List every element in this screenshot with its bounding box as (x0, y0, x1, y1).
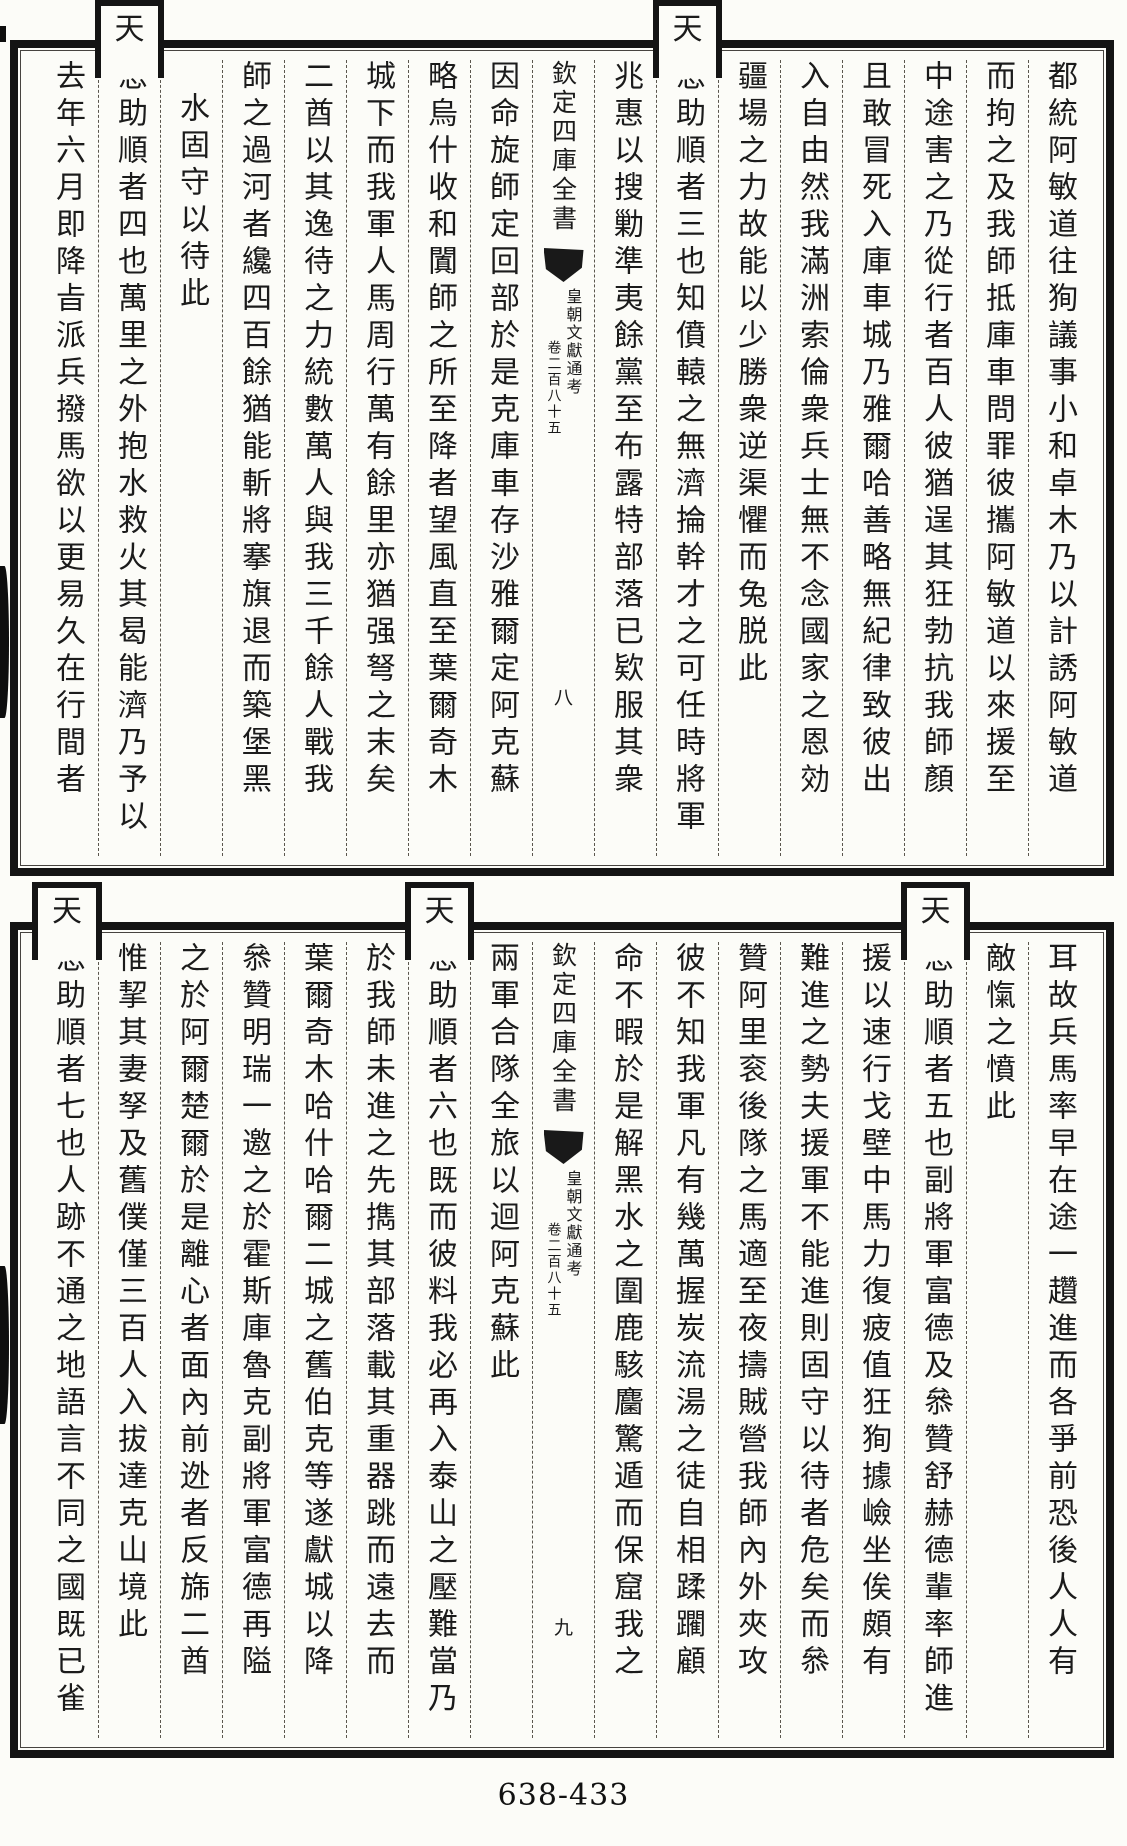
banxin-small-text: 皇朝文獻通考 卷二百八十五 (545, 288, 583, 436)
raised-tian-notch: 天 (95, 0, 164, 78)
lower-page-text-area: 耳故兵馬率早在途一趲進而各爭前恐後人人有 敵愾之憤此 天 恩助順者五也副將軍富德… (20, 932, 1104, 1748)
column-text: 恩助順者五也副將軍富德及叅贊舒赫德輩率師進 (918, 942, 953, 1719)
text-column: 兩軍合隊全旅以迴阿克蘇此 (470, 942, 532, 1738)
text-column: 疆場之力故能以少勝衆逆渠懼而兔脱此 (718, 60, 780, 856)
text-column: 惟挈其妻孥及舊僕僅三百人入拔達克山境此 (98, 942, 160, 1738)
text-column-raised-honorific: 天 恩助順者四也萬里之外抱水救火其曷能濟乃予以 (98, 60, 160, 856)
raised-tian-notch: 天 (32, 882, 102, 960)
text-column: 中途害之乃從行者百人彼猶逞其狂勃抗我師顏 (904, 60, 966, 856)
raised-tian-notch: 天 (653, 0, 722, 78)
banxin-page-number: 八 (554, 689, 573, 708)
upper-page-block: 都統阿敏道往狥議事小和卓木乃以計誘阿敏道 而拘之及我師抵庫車問罪彼攜阿敏道以來援… (10, 40, 1114, 876)
text-column-raised-honorific: 天 恩助順者七也人跡不通之地語言不同之國既已雀 (36, 942, 98, 1738)
text-column: 敵愾之憤此 (966, 942, 1028, 1738)
text-column: 贊阿里衮後隊之馬適至夜擣賊營我師內外夾攻 (718, 942, 780, 1738)
column-text: 恩助順者七也人跡不通之地語言不同之國既已雀 (50, 942, 85, 1719)
text-column: 因命旋師定回部於是克庫車存沙雅爾定阿克蘇 (470, 60, 532, 856)
fishtail-mark-icon (544, 248, 584, 282)
scan-artifact (0, 566, 9, 718)
banxin-chapter-label: 卷二百八十五 (545, 1222, 563, 1318)
text-column: 二酋以其逸待之力統數萬人與我三千餘人戰我 (284, 60, 346, 856)
banxin-center-column: 欽定四庫全書 皇朝文獻通考 卷二百八十五 九 (532, 942, 594, 1738)
raised-tian-notch: 天 (901, 882, 970, 960)
banxin-page-number: 九 (554, 1619, 573, 1638)
banxin-book-title: 皇朝文獻通考 (563, 288, 583, 436)
text-column: 難進之勢夫援軍不能進則固守以待者危矣而叅 (780, 942, 842, 1738)
scan-artifact (0, 26, 6, 42)
text-column: 城下而我軍人馬周行萬有餘里亦猶强弩之末矣 (346, 60, 408, 856)
column-text: 恩助順者三也知僨轅之無濟掄幹才之可任時將軍 (670, 60, 705, 837)
text-column: 水固守以待此 (160, 60, 222, 856)
banxin-series-title: 欽定四庫全書 (534, 60, 592, 234)
text-column: 略烏什收和闐師之所至降者望風直至葉爾奇木 (408, 60, 470, 856)
text-column-raised-honorific: 天 恩助順者五也副將軍富德及叅贊舒赫德輩率師進 (904, 942, 966, 1738)
text-column: 葉爾奇木哈什哈爾二城之舊伯克等遂獻城以降 (284, 942, 346, 1738)
scanned-page: 都統阿敏道往狥議事小和卓木乃以計誘阿敏道 而拘之及我師抵庫車問罪彼攜阿敏道以來援… (0, 0, 1127, 1846)
fishtail-mark-icon (544, 1130, 584, 1164)
raised-tian-notch: 天 (405, 882, 474, 960)
text-column: 兆惠以搜勦準夷餘黨至布露特部落已欵服其衆 (594, 60, 656, 856)
text-column: 之於阿爾楚爾於是離心者面內前迯者反旆二酋 (160, 942, 222, 1738)
text-column: 命不暇於是解黑水之圍鹿駭麕驚遁而保窟我之 (594, 942, 656, 1738)
text-column-raised-honorific: 天 恩助順者六也既而彼料我必再入泰山之壓難當乃 (408, 942, 470, 1738)
text-column: 援以速行戈壁中馬力復疲值狂狥據嶮坐俟頗有 (842, 942, 904, 1738)
text-column: 彼不知我軍凡有幾萬握炭流湯之徒自相蹂躙顧 (656, 942, 718, 1738)
banxin-center-column: 欽定四庫全書 皇朝文獻通考 卷二百八十五 八 (532, 60, 594, 856)
banxin-book-title: 皇朝文獻通考 (563, 1170, 583, 1318)
banxin-chapter-label: 卷二百八十五 (545, 340, 563, 436)
text-column: 師之過河者纔四百餘猶能斬將搴旗退而築堡黑 (222, 60, 284, 856)
scan-artifact (0, 1266, 9, 1424)
text-column: 且敢冒死入庫車城乃雅爾哈善略無紀律致彼出 (842, 60, 904, 856)
text-column: 去年六月即降㫖派兵撥馬欲以更易久在行間者 (36, 60, 98, 856)
catalog-number: 638-433 (0, 1778, 1127, 1813)
text-column: 而拘之及我師抵庫車問罪彼攜阿敏道以來援至 (966, 60, 1028, 856)
column-text: 恩助順者四也萬里之外抱水救火其曷能濟乃予以 (112, 60, 147, 837)
text-column: 叅贊明瑞一邀之於霍斯庫魯克副將軍富德再隘 (222, 942, 284, 1738)
lower-page-block: 耳故兵馬率早在途一趲進而各爭前恐後人人有 敵愾之憤此 天 恩助順者五也副將軍富德… (10, 922, 1114, 1758)
text-column: 都統阿敏道往狥議事小和卓木乃以計誘阿敏道 (1028, 60, 1090, 856)
banxin-small-text: 皇朝文獻通考 卷二百八十五 (545, 1170, 583, 1318)
banxin-series-title: 欽定四庫全書 (534, 942, 592, 1116)
text-column: 於我師未進之先擕其部落載其重器跳而遠去而 (346, 942, 408, 1738)
text-column: 入自由然我滿洲索倫衆兵士無不念國家之恩効 (780, 60, 842, 856)
upper-page-text-area: 都統阿敏道往狥議事小和卓木乃以計誘阿敏道 而拘之及我師抵庫車問罪彼攜阿敏道以來援… (20, 50, 1104, 866)
text-column: 耳故兵馬率早在途一趲進而各爭前恐後人人有 (1028, 942, 1090, 1738)
column-text: 恩助順者六也既而彼料我必再入泰山之壓難當乃 (422, 942, 457, 1719)
text-column-raised-honorific: 天 恩助順者三也知僨轅之無濟掄幹才之可任時將軍 (656, 60, 718, 856)
